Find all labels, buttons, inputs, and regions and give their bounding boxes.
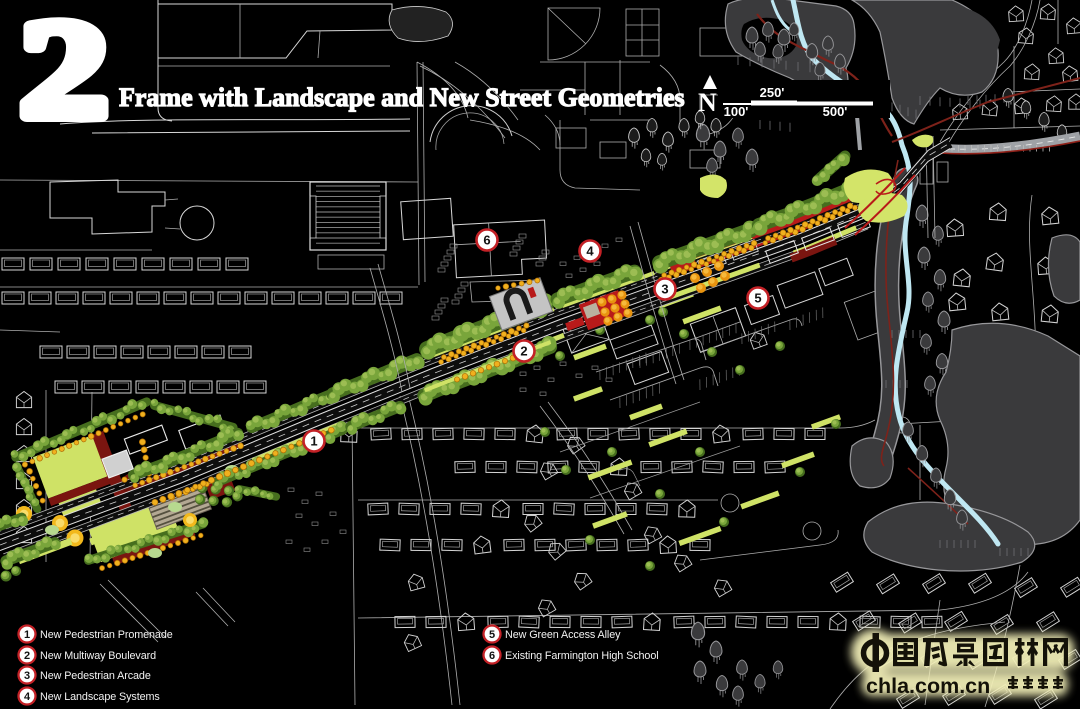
svg-text:1: 1 — [310, 434, 317, 449]
svg-text:500': 500' — [823, 104, 848, 119]
svg-text:5: 5 — [489, 629, 495, 641]
svg-text:New Pedestrian Promenade: New Pedestrian Promenade — [40, 629, 173, 641]
svg-text:New Green Access Alley: New Green Access Alley — [505, 629, 621, 641]
svg-text:4: 4 — [24, 691, 31, 703]
svg-text:3: 3 — [661, 282, 668, 297]
svg-text:250': 250' — [760, 85, 785, 100]
svg-text:New Landscape Systems: New Landscape Systems — [40, 691, 160, 703]
svg-text:N: N — [698, 88, 717, 117]
svg-text:Existing Farmington High Schoo: Existing Farmington High School — [505, 650, 659, 662]
svg-text:New Pedestrian Arcade: New Pedestrian Arcade — [40, 670, 151, 682]
svg-text:5: 5 — [754, 291, 761, 306]
svg-text:6: 6 — [489, 650, 495, 662]
svg-text:Frame with Landscape and New S: Frame with Landscape and New Street Geom… — [119, 83, 685, 112]
svg-text:4: 4 — [586, 244, 594, 259]
svg-text:2: 2 — [20, 0, 109, 147]
svg-text:6: 6 — [483, 233, 490, 248]
svg-text:3: 3 — [24, 670, 30, 682]
svg-text:chla.com.cn: chla.com.cn — [866, 674, 990, 698]
svg-text:100': 100' — [724, 104, 749, 119]
svg-text:2: 2 — [520, 344, 527, 359]
svg-text:1: 1 — [24, 629, 30, 641]
svg-text:New Multiway Boulevard: New Multiway Boulevard — [40, 650, 156, 662]
svg-text:2: 2 — [24, 650, 30, 662]
